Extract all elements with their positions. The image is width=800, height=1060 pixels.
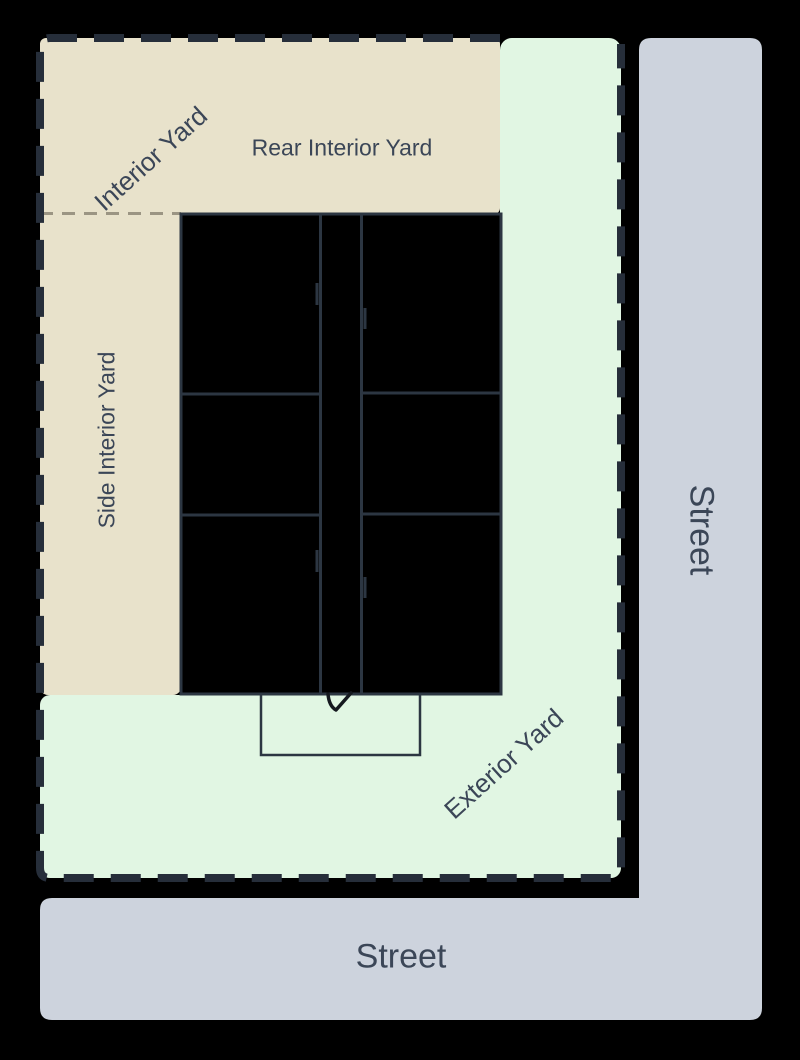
site-plan-diagram: Interior Yard Rear Interior Yard Side In… xyxy=(0,0,800,1060)
street-right-label: Street xyxy=(682,485,721,576)
street-bottom-label: Street xyxy=(356,938,447,977)
building-outline xyxy=(181,214,501,694)
building-footprint xyxy=(181,214,501,694)
side-interior-yard-label: Side Interior Yard xyxy=(94,352,121,529)
rear-interior-yard-label: Rear Interior Yard xyxy=(252,135,433,162)
